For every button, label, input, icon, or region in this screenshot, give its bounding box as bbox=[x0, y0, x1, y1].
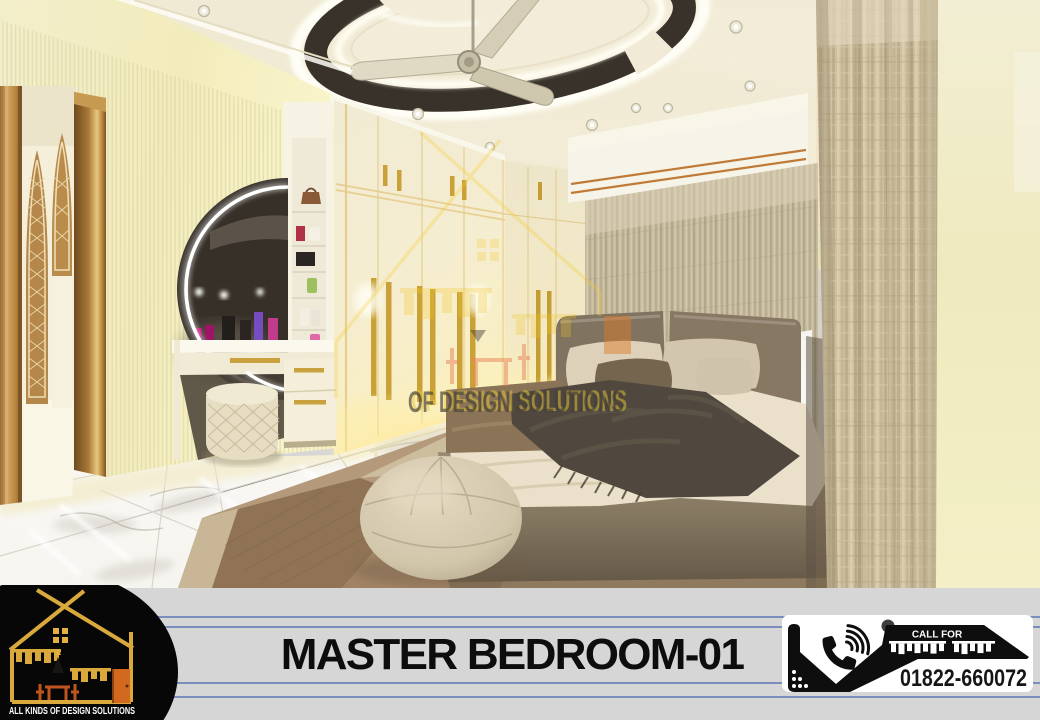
svg-text:OF DESIGN SOLUTIONS: OF DESIGN SOLUTIONS bbox=[408, 386, 624, 420]
svg-text:01822-660072: 01822-660072 bbox=[900, 665, 1027, 692]
svg-text:ALL KINDS OF DESIGN SOLUTIONS: ALL KINDS OF DESIGN SOLUTIONS bbox=[9, 705, 135, 717]
svg-text:CALL FOR: CALL FOR bbox=[912, 630, 963, 641]
